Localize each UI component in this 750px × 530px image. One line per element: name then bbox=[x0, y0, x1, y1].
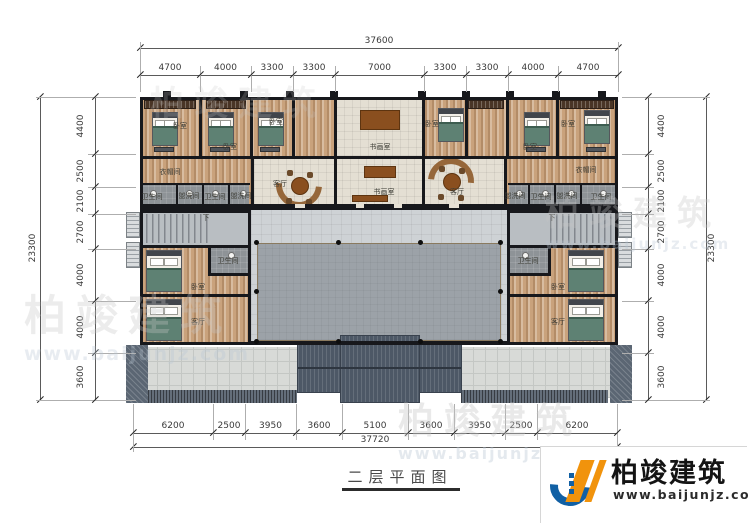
logo-window-icon bbox=[569, 481, 574, 486]
logo-window-icon bbox=[569, 489, 574, 494]
watermark-url: www.baijunjz.com bbox=[24, 343, 250, 365]
brand-url: www.baijunjz.com bbox=[613, 487, 750, 502]
brand-logo-icon bbox=[549, 457, 607, 511]
watermark-url: www.baijunjz.com bbox=[545, 235, 730, 253]
logo-window-icon bbox=[569, 473, 574, 478]
brand-logo: 柏竣建筑 www.baijunjz.com bbox=[540, 446, 747, 523]
watermark: 柏竣建筑 bbox=[150, 76, 326, 125]
watermark: 柏竣建筑www.baijunjz.com bbox=[545, 186, 730, 253]
watermark: 柏竣建筑www.baijunjz.com bbox=[24, 282, 250, 365]
architectural-drawing: 卧室卧室卧室书画室卧室卧室卧室衣帽间衣帽间卫生间盥洗间卫生间盥洗间盥洗间卫生间盥… bbox=[0, 0, 750, 530]
brand-name: 柏竣建筑 bbox=[611, 451, 727, 490]
